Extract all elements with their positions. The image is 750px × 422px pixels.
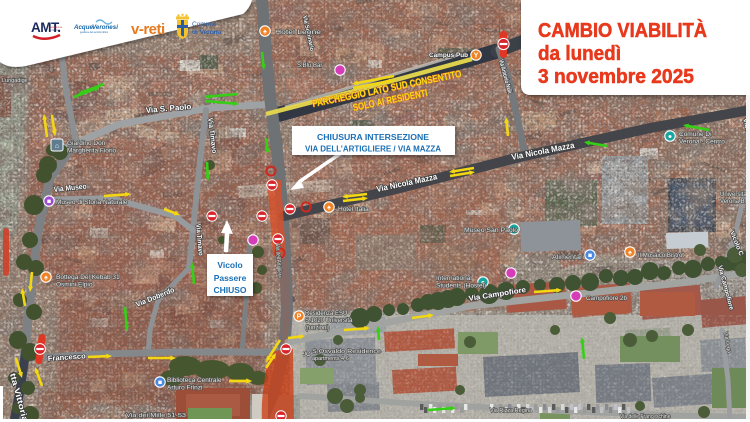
svg-text:Università di: Università di [720,192,750,198]
svg-text:S.1020 Università: S.1020 Università [305,318,353,324]
svg-text:P: P [297,314,302,321]
svg-text:Hotel Leone: Hotel Leone [275,29,321,36]
svg-text:E TRASPORTI: E TRASPORTI [50,29,60,32]
svg-text:Via dei Mille 51-53: Via dei Mille 51-53 [126,413,186,419]
svg-text:Y: Y [474,53,479,60]
svg-text:■: ■ [47,199,51,206]
svg-text:●: ● [668,134,672,141]
svg-text:Il Mosaico Bistrot: Il Mosaico Bistrot [638,252,684,259]
svg-text:Museo San Paolo: Museo San Paolo [464,227,518,234]
svg-text:Lungadige: Lungadige [2,78,28,84]
svg-text:3 novembre 2025: 3 novembre 2025 [538,66,694,88]
svg-text:Campus Pub: Campus Pub [429,52,468,59]
svg-text:Biblioteca Centrale: Biblioteca Centrale [167,377,222,384]
svg-text:Giardino Don: Giardino Don [67,140,106,147]
svg-text:di Verona: di Verona [192,29,222,36]
svg-text:Museo di Storia Naturale: Museo di Storia Naturale [56,199,128,206]
svg-text:♠: ♠ [327,205,331,212]
svg-text:VIA DELL’ARTIGLIERE / VIA MAZZ: VIA DELL’ARTIGLIERE / VIA MAZZA [305,144,442,154]
svg-text:CHIUSURA INTERSEZIONE: CHIUSURA INTERSEZIONE [317,132,429,142]
svg-text:♠: ♠ [44,275,48,282]
svg-text:Passere: Passere [214,273,247,283]
svg-text:Students (Hostel): Students (Hostel) [436,283,486,290]
svg-text:Comune Di: Comune Di [679,131,712,138]
svg-text:⌂: ⌂ [55,143,59,150]
svg-text:Verona - Centro: Verona - Centro [679,139,725,146]
svg-text:■: ■ [158,380,162,387]
svg-text:gestione del servizio idrico: gestione del servizio idrico [80,31,109,34]
svg-text:Hotel Italia: Hotel Italia [338,206,369,213]
svg-text:AZIENDA MOBILITA: AZIENDA MOBILITA [50,26,62,29]
svg-text:S.Osvaldo Residence: S.Osvaldo Residence [312,349,381,355]
svg-text:Vicolo: Vicolo [217,260,242,270]
svg-text:CAMBIO VIABILITÀ: CAMBIO VIABILITÀ [538,19,707,42]
svg-text:CHIUSO: CHIUSO [213,285,246,295]
svg-text:Arturo Frinzi: Arturo Frinzi [167,385,202,392]
svg-text:(funzioni): (funzioni) [305,325,330,331]
svg-text:da lunedì: da lunedì [538,43,621,65]
svg-text:apartments 4-6: apartments 4-6 [312,356,349,362]
svg-text:JO: JO [303,352,311,358]
svg-text:Margherita Fiorio: Margherita Fiorio [67,148,117,155]
svg-text:♠: ♠ [628,250,632,257]
svg-text:Verona B.: Verona B. [720,199,747,205]
svg-text:International: International [436,275,472,282]
svg-text:Campofiore 2b: Campofiore 2b [586,295,627,302]
svg-text:Alimentari: Alimentari [552,254,584,261]
svg-text:♠: ♠ [263,29,267,36]
svg-text:■: ■ [588,253,592,260]
svg-text:Osmini Elpio: Osmini Elpio [56,282,93,289]
svg-text:Comune: Comune [192,21,217,28]
svg-text:S.Blu Bar: S.Blu Bar [297,63,322,69]
svg-text:v‑reti: v‑reti [131,21,165,38]
svg-text:Veronesi: Veronesi [92,24,118,31]
svg-text:Acque: Acque [73,24,93,31]
svg-text:Residenza ESU: Residenza ESU [305,311,347,317]
svg-text:Bottega Del Kebab 31: Bottega Del Kebab 31 [56,274,120,281]
svg-text:Via Rizza Regina: Via Rizza Regina [490,408,533,414]
